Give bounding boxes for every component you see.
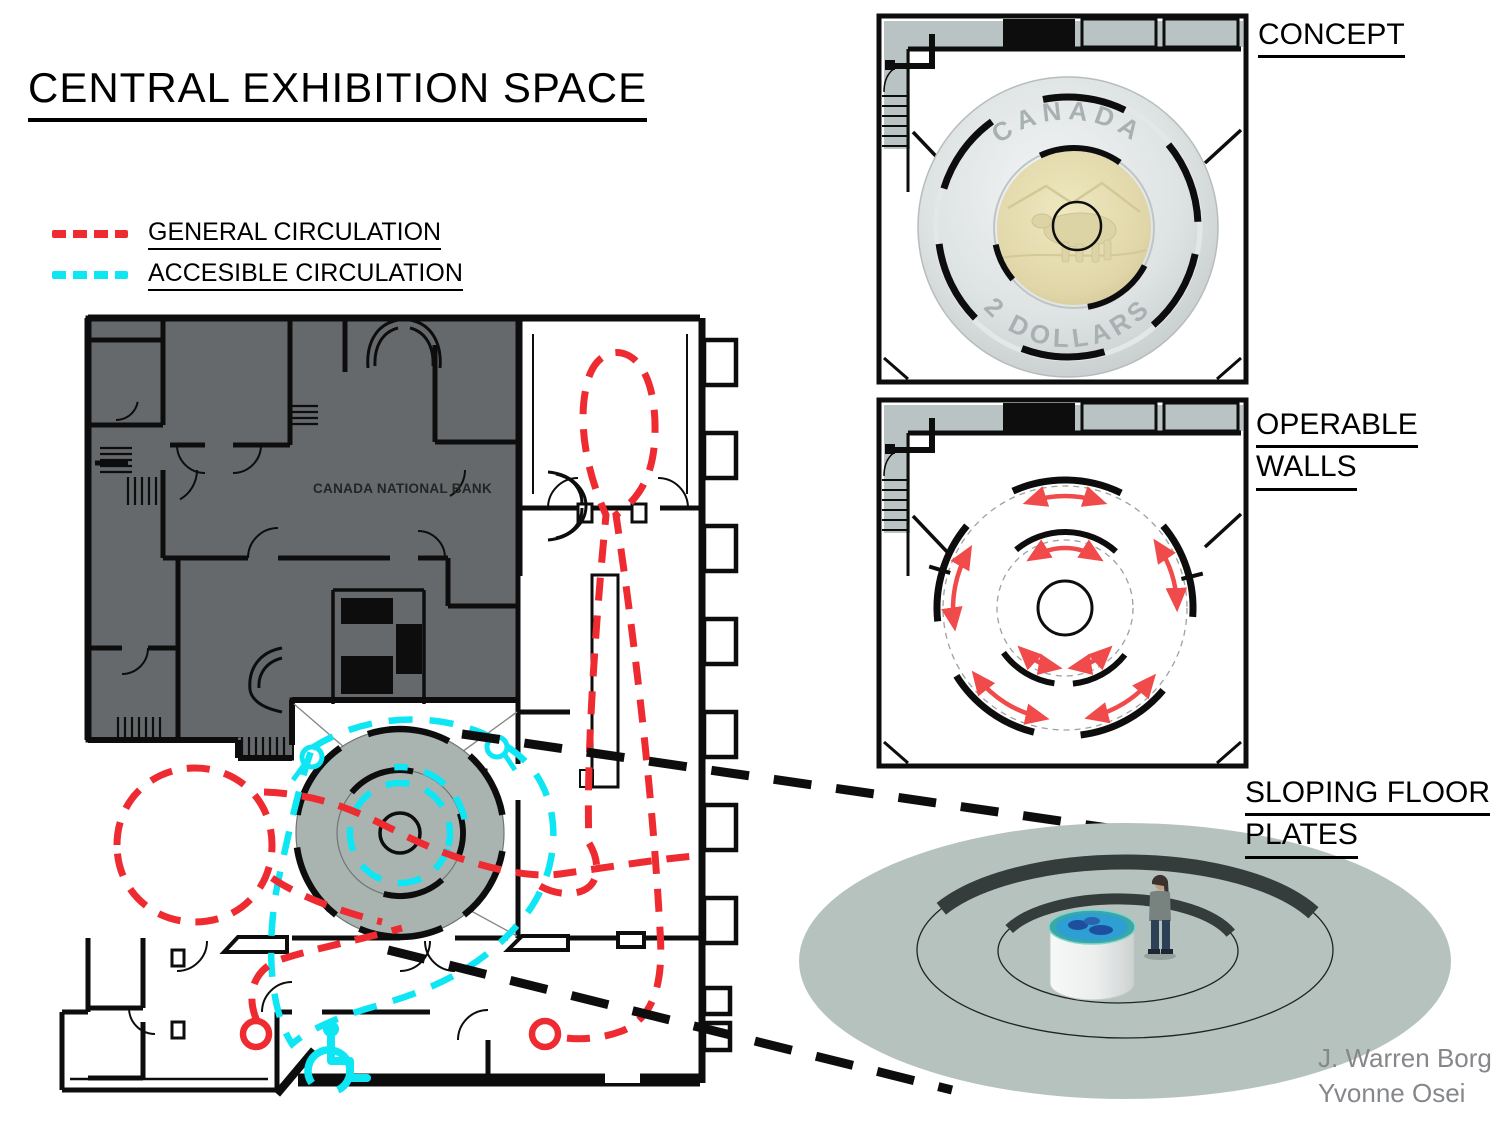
page-title: CENTRAL EXHIBITION SPACE <box>28 64 647 122</box>
presentation-board: CANADA 2 DOLLARS <box>0 0 1500 1125</box>
globe-plinth <box>1049 910 1135 1000</box>
operable-walls-panel <box>879 400 1246 766</box>
legend-label: GENERAL CIRCULATION <box>148 218 441 250</box>
elevator-core <box>341 598 393 624</box>
general-circulation-swatch <box>52 230 128 238</box>
concept-label: CONCEPT <box>1258 16 1405 58</box>
exhibition-circle <box>296 729 504 937</box>
credit-author-2: Yvonne Osei <box>1318 1076 1492 1111</box>
operable-walls-label: OPERABLE WALLS <box>1256 406 1418 491</box>
credits: J. Warren Borg Yvonne Osei <box>1318 1041 1492 1110</box>
legend-item-accessible: ACCESIBLE CIRCULATION <box>52 259 463 291</box>
floor-plan <box>62 318 736 1094</box>
sloping-floor-label: SLOPING FLOOR PLATES <box>1245 774 1490 859</box>
concept-panel: CANADA 2 DOLLARS <box>879 16 1246 382</box>
bank-area <box>88 318 518 758</box>
credit-author-1: J. Warren Borg <box>1318 1041 1492 1076</box>
legend-item-general: GENERAL CIRCULATION <box>52 218 463 250</box>
accessible-circulation-swatch <box>52 271 128 279</box>
building-label: CANADA NATIONAL BANK <box>313 481 492 496</box>
legend: GENERAL CIRCULATION ACCESIBLE CIRCULATIO… <box>52 218 463 291</box>
legend-label: ACCESIBLE CIRCULATION <box>148 259 463 291</box>
board-graphics: CANADA 2 DOLLARS <box>0 0 1500 1125</box>
right-wall-modules <box>704 340 736 1050</box>
